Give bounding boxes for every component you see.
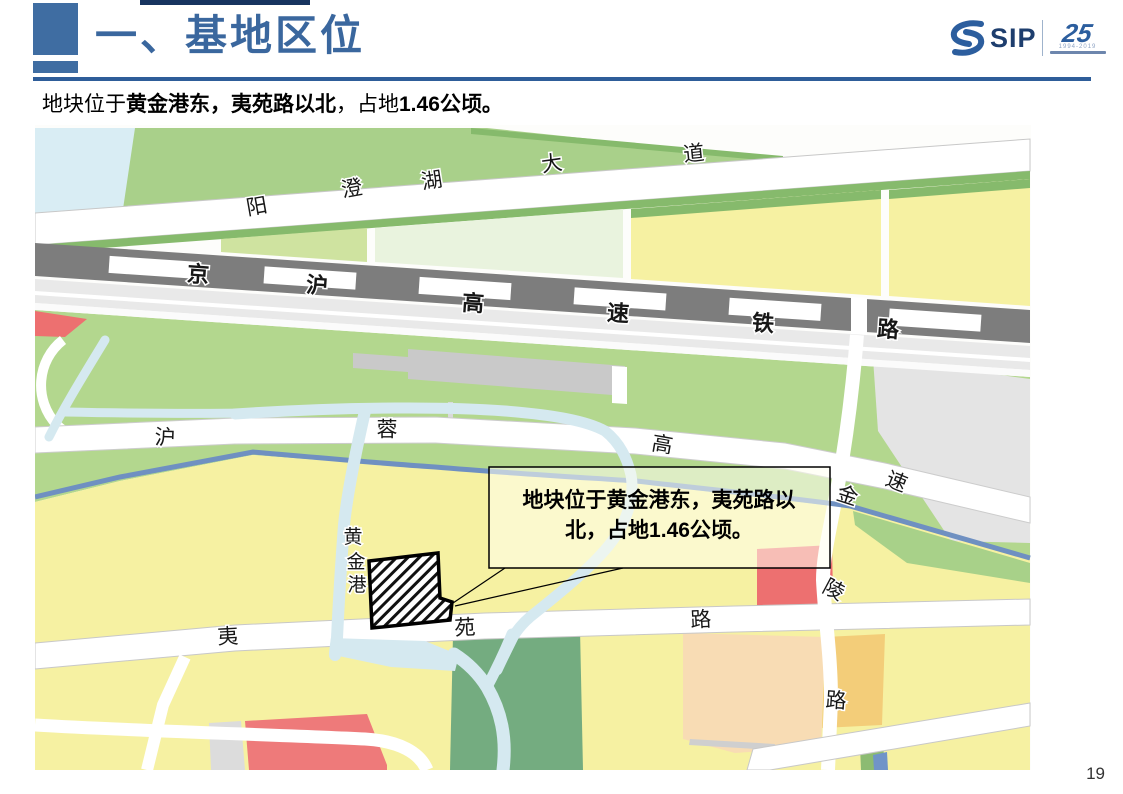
- road-label: 道: [682, 142, 705, 167]
- title-square-decoration: [33, 3, 78, 55]
- railway-label: 铁: [751, 310, 775, 336]
- road-label: 阳: [244, 194, 269, 220]
- railway-label: 路: [876, 316, 901, 343]
- huangjingang-label: 金: [346, 551, 365, 573]
- expressway-label: 蓉: [377, 419, 398, 442]
- peach-parcel: [683, 633, 825, 753]
- callout-line2: 北，占地1.46公顷。: [565, 518, 753, 542]
- railway-label: 速: [606, 300, 630, 326]
- subtitle-seg4-bold: 1.46公顷。: [399, 93, 503, 116]
- anniversary-25-mark: 25: [1061, 23, 1093, 43]
- road-label: 澄: [339, 176, 364, 202]
- callout: 地块位于黄金港东，夷苑路以 北，占地1.46公顷。: [489, 467, 830, 568]
- sip-logo-text: SIP: [990, 23, 1037, 54]
- huangjingang-label: 黄: [343, 526, 362, 548]
- yiyuan-road-label: 苑: [454, 616, 476, 640]
- subtitle-seg1: 地块位于: [42, 93, 126, 116]
- expressway-label: 沪: [154, 426, 176, 450]
- road-label: 大: [540, 151, 564, 177]
- yiyuan-road-label: 路: [690, 608, 712, 632]
- railway-label: 京: [186, 261, 210, 287]
- title-underline: [33, 77, 1091, 81]
- yiyuan-road-label: 夷: [217, 625, 239, 649]
- huangjingang-label: 港: [347, 574, 366, 596]
- slide: 一、基地区位 SIP 25 1994-2019 地块位于黄金港东，夷苑路以北，占…: [0, 0, 1123, 794]
- logo-microtext-bar: [1050, 51, 1106, 54]
- lake: [35, 128, 135, 215]
- slide-subtitle: 地块位于黄金港东，夷苑路以北，占地1.46公顷。: [42, 88, 503, 118]
- railway-label: 沪: [305, 272, 329, 298]
- site-polygon: [369, 553, 452, 628]
- park-green: [450, 629, 583, 770]
- subtitle-seg2-bold: 黄金港东，夷苑路以北: [126, 93, 336, 116]
- jinling-road-label: 路: [825, 689, 848, 713]
- road-label: 湖: [420, 168, 444, 194]
- sip-logo: SIP 25 1994-2019: [948, 10, 1120, 66]
- title-square-decoration-small: [33, 61, 78, 73]
- sip-s-swoosh-icon: [948, 18, 988, 58]
- railway-label: 高: [461, 290, 485, 316]
- callout-line1: 地块位于黄金港东，夷苑路以: [523, 488, 796, 512]
- page-title: 一、基地区位: [95, 2, 365, 63]
- expressway-label: 高: [650, 432, 675, 458]
- subtitle-seg3: ，占地: [336, 93, 399, 116]
- site-location-map: 阳 澄 湖 大 道 京 沪 高 速 铁 路 沪 蓉 高 速 金 陵 路 黄 金 …: [35, 125, 1031, 770]
- page-number: 19: [1086, 764, 1105, 784]
- logo-divider: [1042, 20, 1043, 56]
- callout-box: [489, 467, 830, 568]
